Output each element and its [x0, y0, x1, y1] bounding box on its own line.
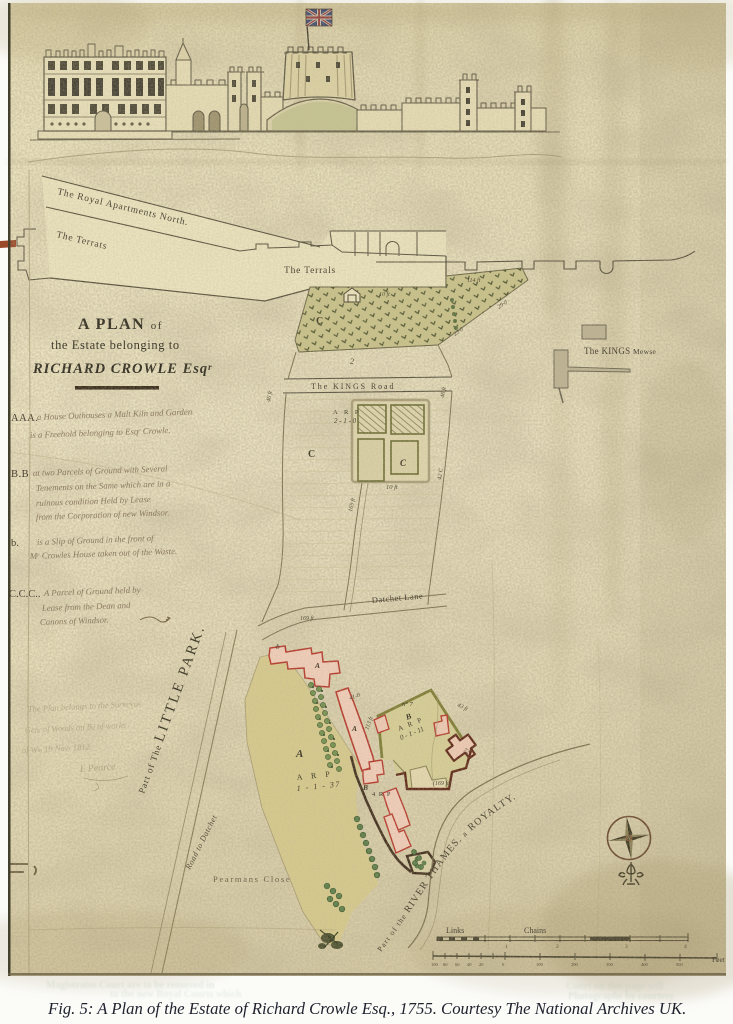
- svg-text:Fig. 5: A Plan of the Estate o: Fig. 5: A Plan of the Estate of Richard …: [47, 999, 686, 1018]
